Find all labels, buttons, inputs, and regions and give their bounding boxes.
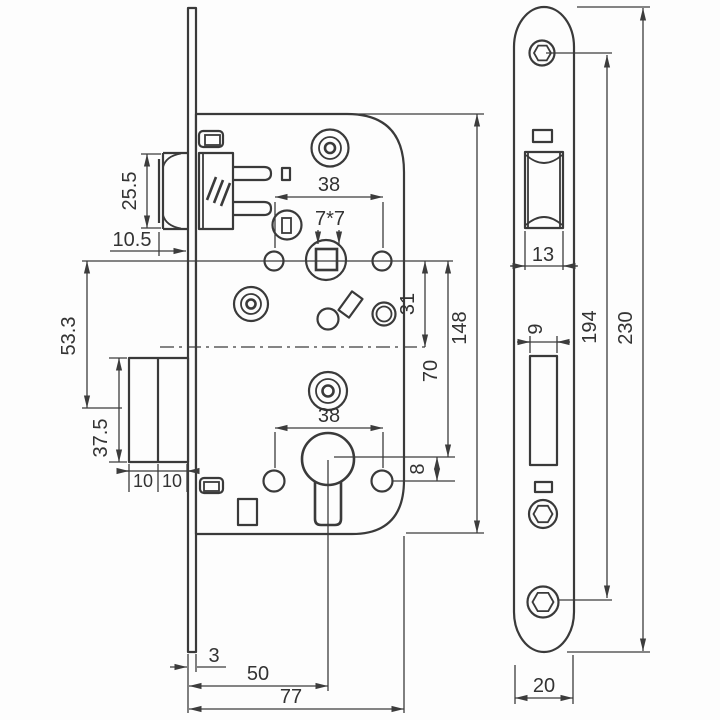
deadbolt (129, 358, 188, 462)
dim-label-latch-cutout: 13 (532, 244, 554, 266)
dim-plate-thickness: 3 (170, 645, 226, 713)
dim-label-plate-thickness: 3 (208, 645, 219, 667)
dim-latch-height: 25.5 (119, 154, 161, 228)
dim-label-top-spacing: 38 (318, 174, 340, 196)
latch-bolt-head (159, 153, 188, 229)
dim-label-bolt-front: 10 (133, 471, 153, 491)
dim-bolt-widths: 10 10 (121, 464, 195, 492)
dim-label-latch-protrusion: 10.5 (113, 229, 152, 251)
dim-label-axis-to-bolt: 53.3 (58, 317, 80, 356)
dim-latch-protrusion: 10.5 (110, 229, 186, 256)
dim-label-screw-spacing: 194 (579, 310, 601, 343)
dim-label-axis-to-centerline: 31 (397, 293, 419, 315)
dim-label-deadbolt-height: 37.5 (90, 419, 112, 458)
left-view-lock-body (82, 8, 453, 652)
dim-label-spindle-square: 7*7 (315, 208, 345, 230)
dim-label-case-height: 148 (449, 311, 471, 344)
dim-label-plate-width: 20 (533, 675, 555, 697)
faceplate-edge (188, 8, 196, 652)
technical-drawing: 25.5 10.5 53.3 37.5 10 10 (0, 0, 720, 720)
dim-label-cylinder-offset: 8 (407, 463, 429, 474)
dim-label-plate-length: 230 (615, 311, 637, 344)
lock-case-outline (196, 114, 404, 534)
dim-label-case-depth: 77 (280, 686, 302, 708)
dim-label-latch-height: 25.5 (119, 172, 141, 211)
dim-deadbolt-height: 37.5 (90, 358, 127, 462)
dim-label-backset: 50 (247, 663, 269, 685)
dim-label-bolt-back: 10 (162, 471, 182, 491)
dim-label-axis-to-cylinder: 70 (420, 360, 442, 382)
dim-axis-to-bolt: 53.3 (58, 261, 122, 408)
dim-label-bottom-spacing: 38 (318, 405, 340, 427)
dim-plate-width: 20 (515, 655, 573, 704)
drawing-canvas: 25.5 10.5 53.3 37.5 10 10 (0, 0, 720, 720)
dim-label-bolt-cutout: 9 (525, 323, 547, 334)
